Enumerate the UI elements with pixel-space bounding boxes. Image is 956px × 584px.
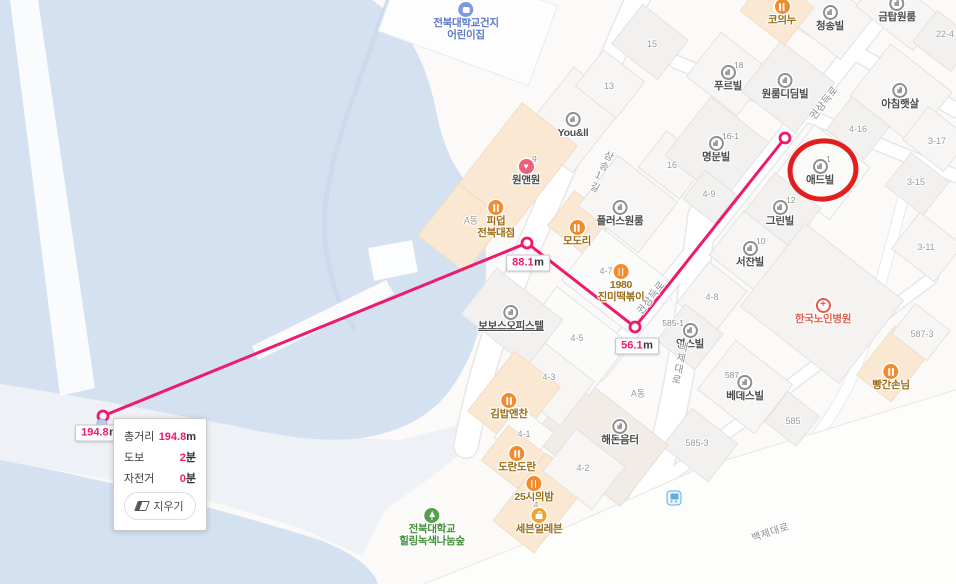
- total-distance-value: 194.8m: [159, 431, 196, 443]
- overlay-layer: 총거리 194.8m 도보 2분 자전거 0분 지우기 56.1m88.1m19…: [0, 0, 956, 584]
- distance-label: 88.1m: [506, 255, 550, 272]
- distance-label: 56.1m: [615, 338, 659, 355]
- map-container[interactable]: 전북대학교건지 어린이집코의누청송빌금탑원룸22-4151318푸르빌원룸디딤빌…: [0, 0, 956, 584]
- clear-button[interactable]: 지우기: [124, 492, 196, 520]
- bike-time-row: 자전거 0분: [124, 470, 196, 486]
- total-distance-label: 총거리: [124, 428, 154, 444]
- bike-time-value: 0분: [180, 470, 196, 486]
- eraser-icon: [134, 501, 150, 511]
- bike-time-label: 자전거: [124, 470, 154, 486]
- walk-time-label: 도보: [124, 449, 144, 465]
- walk-time-value: 2분: [180, 449, 196, 465]
- walk-time-row: 도보 2분: [124, 449, 196, 465]
- measure-tooltip: 총거리 194.8m 도보 2분 자전거 0분 지우기: [113, 418, 207, 531]
- total-distance-row: 총거리 194.8m: [124, 428, 196, 444]
- clear-button-label: 지우기: [153, 498, 183, 514]
